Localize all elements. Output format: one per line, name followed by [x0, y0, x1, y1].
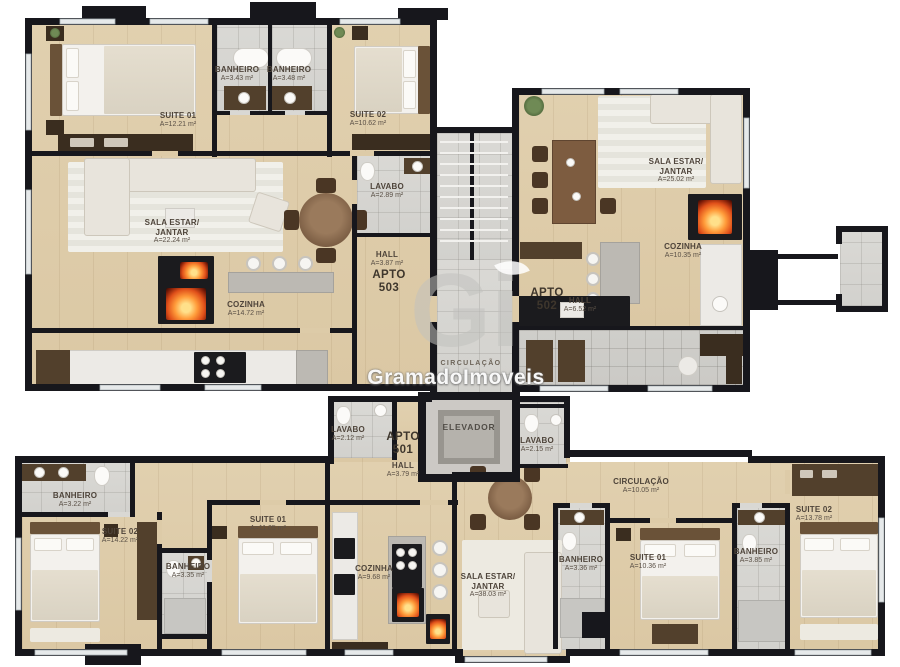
walls-layer — [0, 0, 900, 667]
windows — [16, 19, 884, 662]
walls — [15, 2, 888, 665]
floor-plan: SUITE 01 A=12.21 m² BANHEIRO A=3.43 m² B… — [0, 0, 900, 667]
